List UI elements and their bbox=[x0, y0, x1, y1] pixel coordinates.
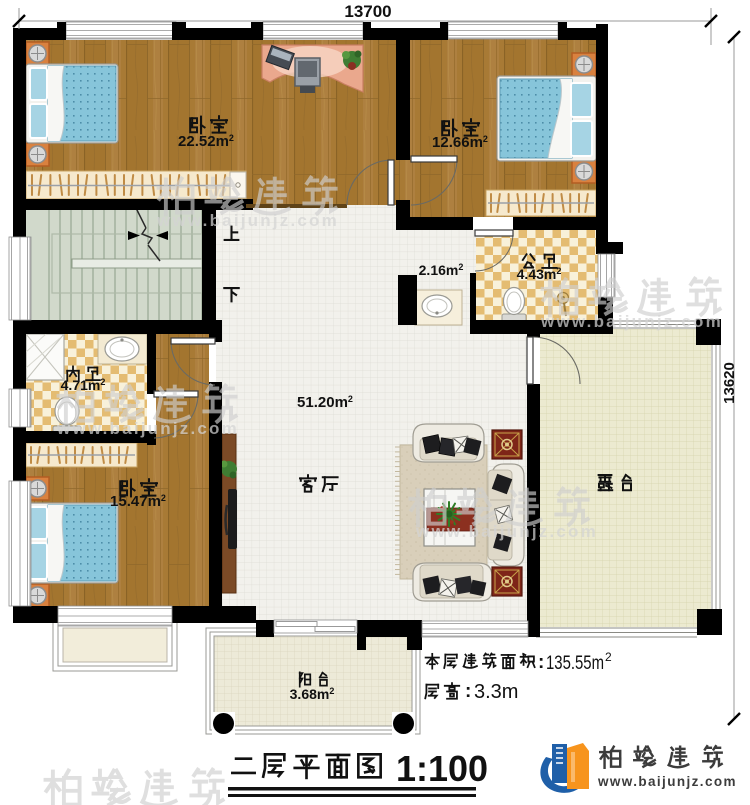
svg-text:4.71m2: 4.71m2 bbox=[61, 377, 106, 393]
svg-text:13620: 13620 bbox=[721, 362, 738, 404]
svg-text:13700: 13700 bbox=[344, 2, 391, 21]
svg-text:www.baijunjz.com: www.baijunjz.com bbox=[415, 522, 598, 541]
svg-text:www.baijunjz.com: www.baijunjz.com bbox=[540, 312, 723, 331]
svg-text:22.52m2: 22.52m2 bbox=[178, 133, 234, 150]
svg-text:www.baijunjz.com: www.baijunjz.com bbox=[597, 774, 737, 789]
svg-text:1:100: 1:100 bbox=[396, 748, 488, 789]
svg-text:2: 2 bbox=[605, 650, 612, 664]
svg-text:12.66m2: 12.66m2 bbox=[432, 134, 488, 151]
svg-text:2.16m2: 2.16m2 bbox=[419, 262, 464, 278]
svg-text:www.baijunjz.com: www.baijunjz.com bbox=[156, 211, 339, 230]
svg-text::: : bbox=[538, 652, 544, 673]
svg-text:3.68m2: 3.68m2 bbox=[290, 686, 335, 702]
svg-text:4.43m2: 4.43m2 bbox=[517, 266, 562, 282]
svg-text:www.baijunjz.com: www.baijunjz.com bbox=[56, 419, 239, 438]
svg-text:15.47m2: 15.47m2 bbox=[110, 493, 166, 510]
svg-text:135.55m: 135.55m bbox=[546, 652, 604, 674]
svg-text:51.20m2: 51.20m2 bbox=[297, 394, 353, 411]
svg-text:3.3m: 3.3m bbox=[474, 681, 518, 703]
svg-text::: : bbox=[465, 681, 471, 702]
